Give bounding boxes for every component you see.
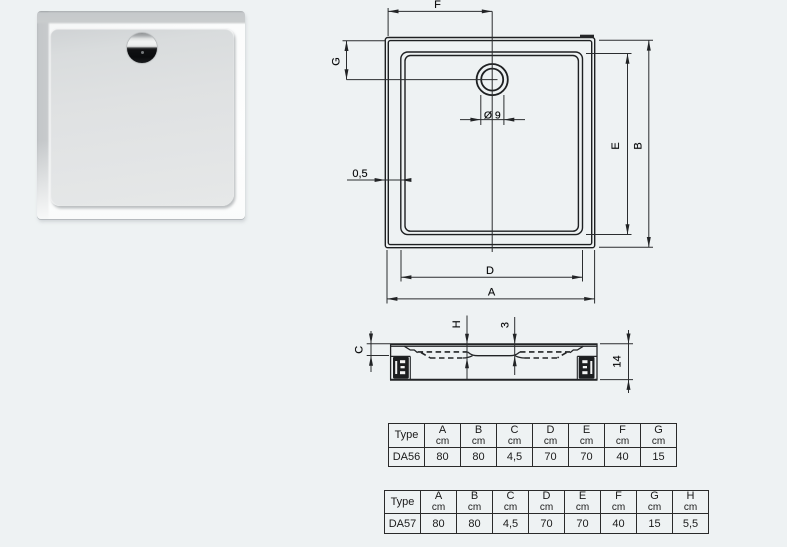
svg-text:3: 3 [500, 322, 512, 328]
svg-text:F: F [434, 0, 441, 11]
svg-text:E: E [610, 142, 622, 149]
svg-text:H: H [451, 320, 463, 328]
svg-text:Ø 9: Ø 9 [484, 110, 501, 122]
svg-text:D: D [486, 265, 494, 277]
svg-text:0,5: 0,5 [352, 168, 367, 180]
svg-text:A: A [488, 287, 496, 299]
svg-text:14: 14 [612, 355, 624, 367]
svg-text:G: G [331, 57, 343, 66]
svg-text:C: C [354, 346, 366, 354]
svg-text:B: B [633, 142, 645, 149]
